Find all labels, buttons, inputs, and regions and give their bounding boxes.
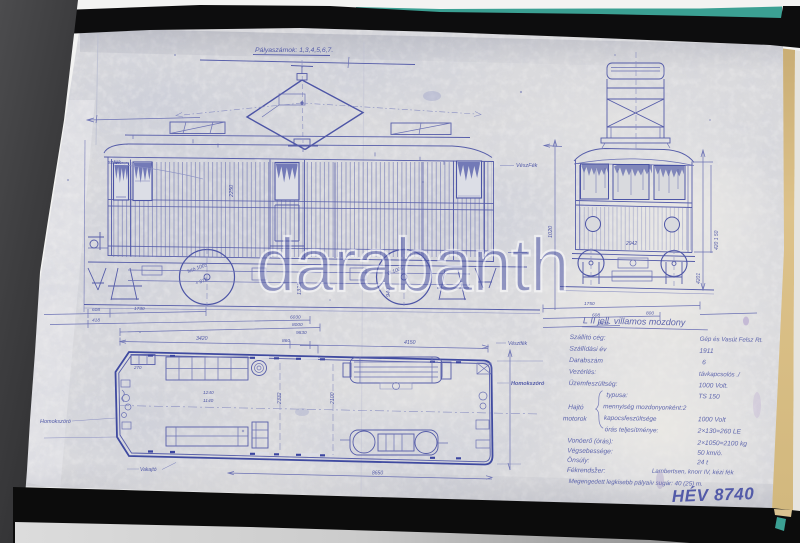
svg-text:Gép és Vasút Felsz Rt.: Gép és Vasút Felsz Rt.: [700, 336, 764, 344]
svg-text:Üzemfeszültség:: Üzemfeszültség:: [569, 379, 618, 388]
svg-text:Darabszám: Darabszám: [569, 357, 603, 365]
svg-text:typusa:: typusa:: [606, 392, 628, 399]
svg-text:6030: 6030: [290, 315, 301, 321]
svg-text:608: 608: [92, 307, 100, 313]
svg-text:Homokszóró: Homokszóró: [40, 419, 71, 425]
svg-text:9830: 9830: [296, 330, 307, 336]
svg-text:Vonóerő (órás):: Vonóerő (órás):: [567, 437, 613, 445]
svg-text:darabanth: darabanth: [256, 223, 569, 308]
svg-text:1140: 1140: [203, 398, 214, 404]
svg-text:1000 Volt: 1000 Volt: [698, 416, 727, 424]
svg-text:2942: 2942: [625, 241, 637, 247]
svg-text:420 1 50: 420 1 50: [714, 230, 720, 250]
svg-text:TS 150: TS 150: [698, 393, 720, 400]
svg-text:motorok: motorok: [563, 415, 588, 423]
svg-text:Végsebessége:: Végsebessége:: [567, 447, 613, 455]
svg-text:1911: 1911: [699, 348, 714, 355]
svg-text:Szállító cég:: Szállító cég:: [570, 334, 606, 342]
svg-text:800: 800: [646, 311, 654, 317]
svg-text:2250: 2250: [229, 184, 235, 198]
svg-text:1000 Volt.: 1000 Volt.: [699, 382, 729, 390]
svg-text:270: 270: [133, 365, 142, 370]
svg-text:8650: 8650: [372, 471, 383, 477]
svg-text:VészFék: VészFék: [516, 163, 538, 169]
svg-text:Vezérlés:: Vezérlés:: [569, 368, 597, 376]
svg-text:szfék: szfék: [108, 160, 121, 166]
svg-text:24 t: 24 t: [696, 459, 709, 466]
svg-text:Szállídási év: Szállídási év: [569, 345, 607, 353]
svg-text:4150: 4150: [404, 340, 416, 346]
svg-text:kapocsfeszültsége: kapocsfeszültsége: [604, 415, 657, 423]
svg-text:6: 6: [702, 359, 706, 366]
svg-text:2×1050=2100 kg: 2×1050=2100 kg: [696, 440, 747, 448]
svg-text:Vésztfék: Vésztfék: [508, 341, 528, 347]
svg-text:HÉV 8740: HÉV 8740: [671, 484, 754, 506]
svg-text:1730: 1730: [134, 306, 145, 312]
svg-text:1750: 1750: [584, 301, 595, 307]
svg-text:Fékrendszer:: Fékrendszer:: [567, 467, 606, 475]
svg-text:8000: 8000: [292, 322, 303, 328]
svg-text:órás teljesítménye:: órás teljesítménye:: [605, 426, 659, 434]
svg-text:1240: 1240: [203, 390, 214, 396]
svg-text:Önsúly:: Önsúly:: [567, 456, 590, 464]
svg-text:3420: 3420: [196, 336, 208, 342]
svg-text:Homokszóró: Homokszóró: [511, 381, 545, 387]
svg-text:860: 860: [282, 338, 290, 344]
svg-text:távkapcsolós ./: távkapcsolós ./: [699, 371, 741, 379]
svg-text:Vakajtó: Vakajtó: [140, 467, 157, 473]
svg-text:Pályaszámok: 1,3,4,5,6,7.: Pályaszámok: 1,3,4,5,6,7.: [255, 47, 333, 54]
svg-text:418: 418: [92, 318, 100, 324]
svg-text:Hajtó: Hajtó: [568, 404, 584, 411]
svg-text:50 km/ó.: 50 km/ó.: [697, 450, 723, 458]
svg-text:2×130=260 LE: 2×130=260 LE: [697, 428, 742, 436]
svg-text:4201: 4201: [696, 273, 702, 284]
